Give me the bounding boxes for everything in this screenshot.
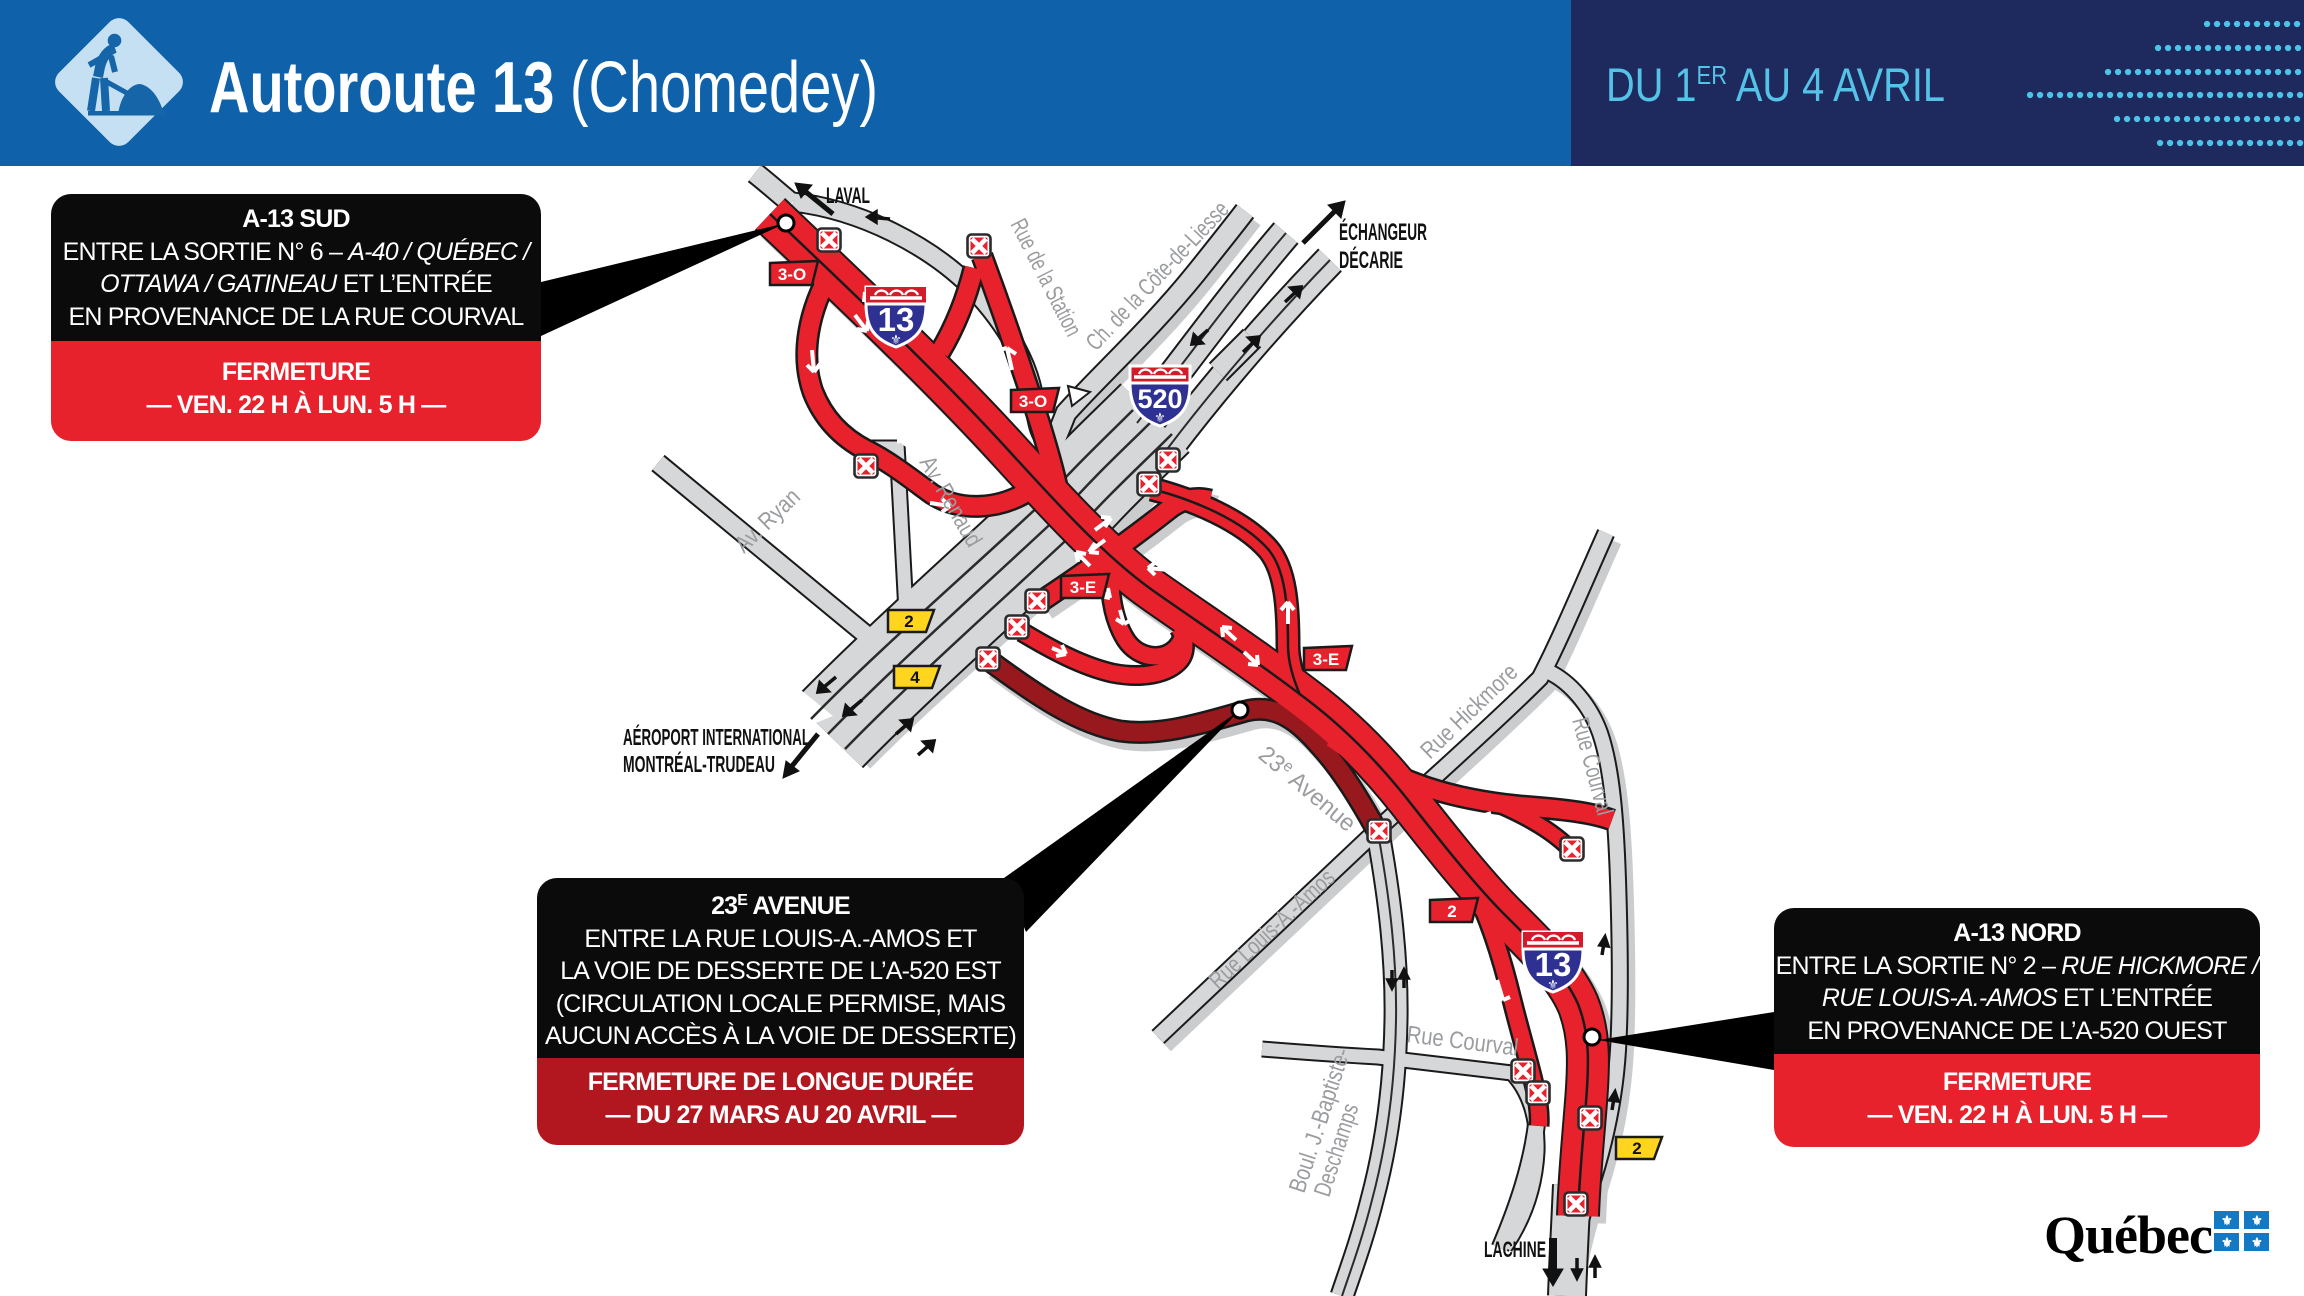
svg-text:3-O: 3-O — [1019, 392, 1047, 411]
svg-text:AÉROPORT INTERNATIONAL: AÉROPORT INTERNATIONAL — [623, 723, 810, 750]
svg-text:ÉCHANGEUR: ÉCHANGEUR — [1339, 218, 1427, 246]
svg-text:2: 2 — [1632, 1139, 1641, 1158]
svg-text:⚜: ⚜ — [2221, 1213, 2232, 1228]
svg-text:4: 4 — [910, 668, 920, 687]
svg-text:DU 1ER AU 4 AVRIL: DU 1ER AU 4 AVRIL — [1606, 58, 1945, 111]
svg-text:2: 2 — [904, 612, 913, 631]
svg-text:LACHINE: LACHINE — [1484, 1237, 1546, 1262]
svg-text:DÉCARIE: DÉCARIE — [1339, 246, 1403, 274]
svg-text:⚜: ⚜ — [2251, 1213, 2262, 1228]
svg-text:⚜: ⚜ — [2251, 1235, 2262, 1250]
svg-text:Rue Louis-A.-Amos: Rue Louis-A.-Amos — [1204, 864, 1341, 994]
svg-text:⚜: ⚜ — [2221, 1235, 2232, 1250]
svg-text:MONTRÉAL-TRUDEAU: MONTRÉAL-TRUDEAU — [623, 750, 775, 777]
svg-text:3-E: 3-E — [1070, 578, 1096, 597]
svg-text:3-O: 3-O — [778, 265, 806, 284]
svg-text:Autoroute 13 (Chomedey): Autoroute 13 (Chomedey) — [209, 48, 878, 128]
svg-text:LAVAL: LAVAL — [826, 183, 870, 208]
svg-text:3-E: 3-E — [1313, 650, 1339, 669]
svg-text:2: 2 — [1447, 902, 1456, 921]
